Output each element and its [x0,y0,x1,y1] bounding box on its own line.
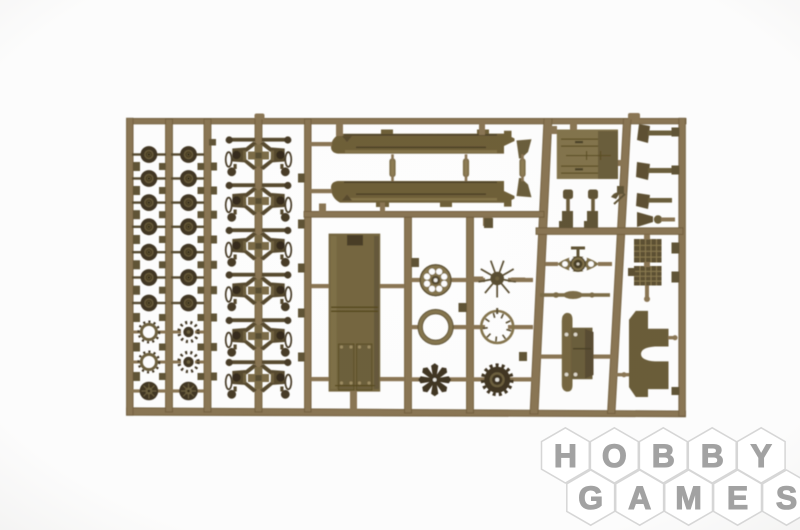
svg-text:A: A [628,480,651,516]
svg-text:S: S [776,480,797,516]
svg-text:E: E [727,480,748,516]
svg-text:B: B [701,438,724,474]
svg-text:M: M [675,480,702,516]
svg-text:H: H [554,438,577,474]
svg-text:B: B [652,438,675,474]
svg-text:O: O [602,438,627,474]
svg-text:G: G [578,480,603,516]
svg-text:Y: Y [751,438,772,474]
